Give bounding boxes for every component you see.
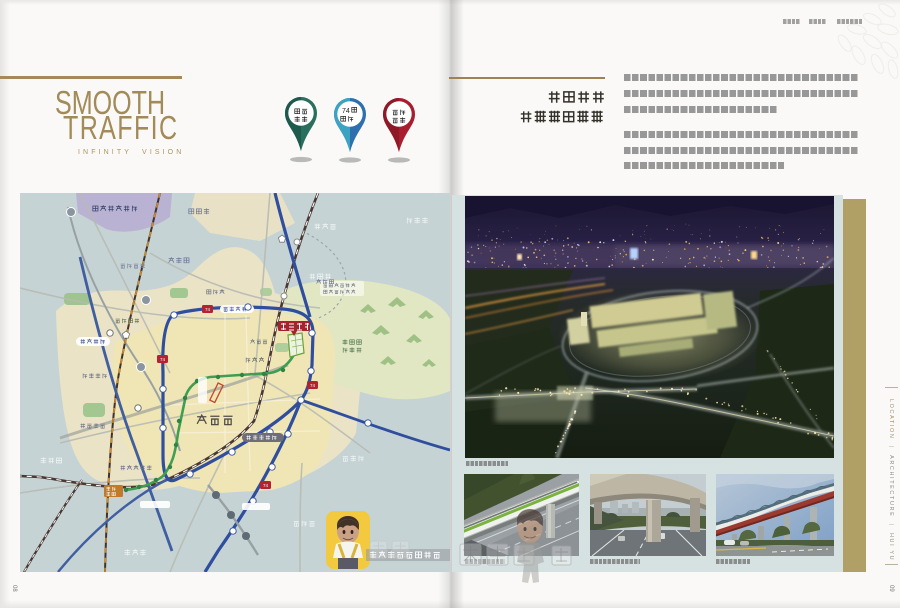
svg-text:74: 74: [205, 307, 211, 312]
svg-text:74: 74: [263, 483, 269, 488]
svg-text:74: 74: [310, 383, 316, 388]
svg-text:74: 74: [160, 357, 166, 362]
svg-text:74: 74: [342, 108, 350, 115]
